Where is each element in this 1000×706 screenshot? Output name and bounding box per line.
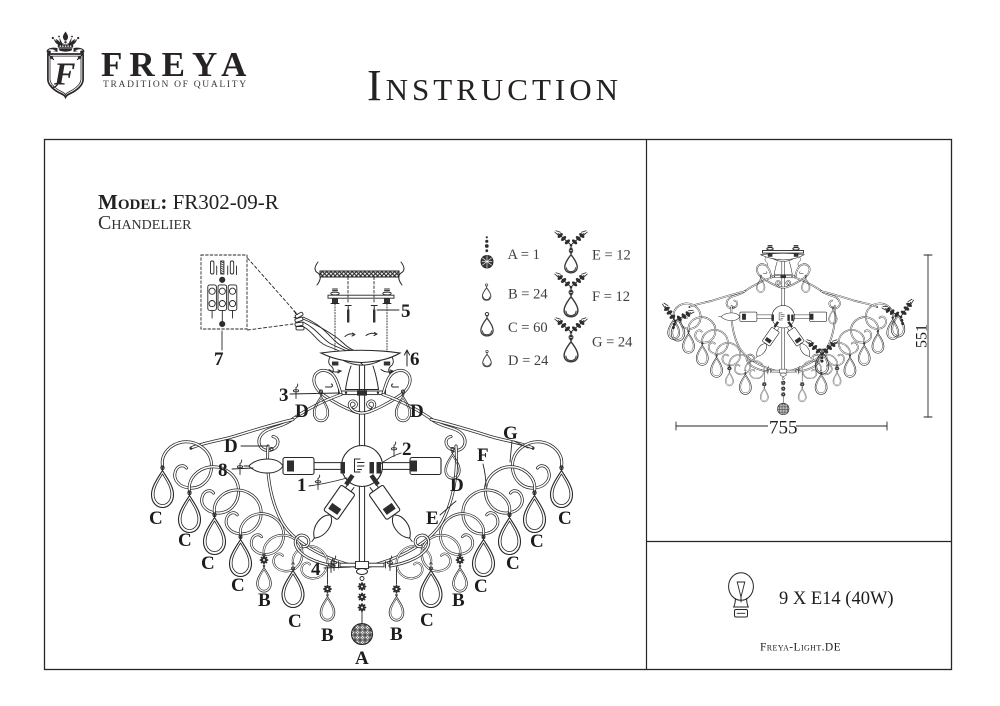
svg-text:5: 5 (401, 301, 411, 322)
svg-text:G = 24: G = 24 (592, 335, 633, 351)
svg-text:B = 24: B = 24 (508, 287, 548, 303)
svg-text:D: D (224, 436, 238, 457)
svg-text:9 X E14 (40W): 9 X E14 (40W) (779, 589, 894, 609)
svg-text:D: D (295, 401, 309, 422)
svg-text:F = 12: F = 12 (592, 289, 630, 305)
svg-text:2: 2 (402, 439, 412, 460)
svg-text:E = 12: E = 12 (592, 248, 631, 264)
svg-text:B: B (321, 625, 334, 646)
svg-text:6: 6 (410, 349, 420, 370)
svg-text:B: B (258, 590, 271, 611)
svg-text:C: C (420, 610, 434, 631)
svg-text:C: C (506, 553, 520, 574)
svg-text:D: D (410, 401, 424, 422)
svg-text:C: C (201, 553, 215, 574)
svg-text:C: C (149, 508, 163, 529)
svg-text:Freya-Light.DE: Freya-Light.DE (760, 642, 841, 654)
svg-text:F: F (477, 445, 489, 466)
svg-text:C: C (288, 611, 302, 632)
svg-text:D: D (450, 475, 464, 496)
svg-text:A = 1: A = 1 (508, 247, 540, 263)
svg-text:3: 3 (279, 385, 289, 406)
svg-text:B: B (390, 624, 403, 645)
svg-text:B: B (452, 590, 465, 611)
svg-text:C: C (178, 530, 192, 551)
svg-text:C = 60: C = 60 (508, 320, 548, 336)
svg-text:E: E (426, 508, 439, 529)
svg-text:551: 551 (914, 324, 931, 348)
svg-text:G: G (503, 423, 518, 444)
svg-text:7: 7 (214, 349, 224, 370)
svg-text:4: 4 (311, 559, 321, 580)
svg-text:C: C (231, 575, 245, 596)
svg-text:C: C (558, 508, 572, 529)
svg-text:755: 755 (769, 418, 798, 439)
svg-text:D = 24: D = 24 (508, 353, 549, 369)
svg-text:1: 1 (297, 475, 307, 496)
svg-text:C: C (474, 576, 488, 597)
svg-text:8: 8 (218, 460, 228, 481)
svg-text:C: C (530, 531, 544, 552)
svg-text:A: A (355, 648, 369, 669)
